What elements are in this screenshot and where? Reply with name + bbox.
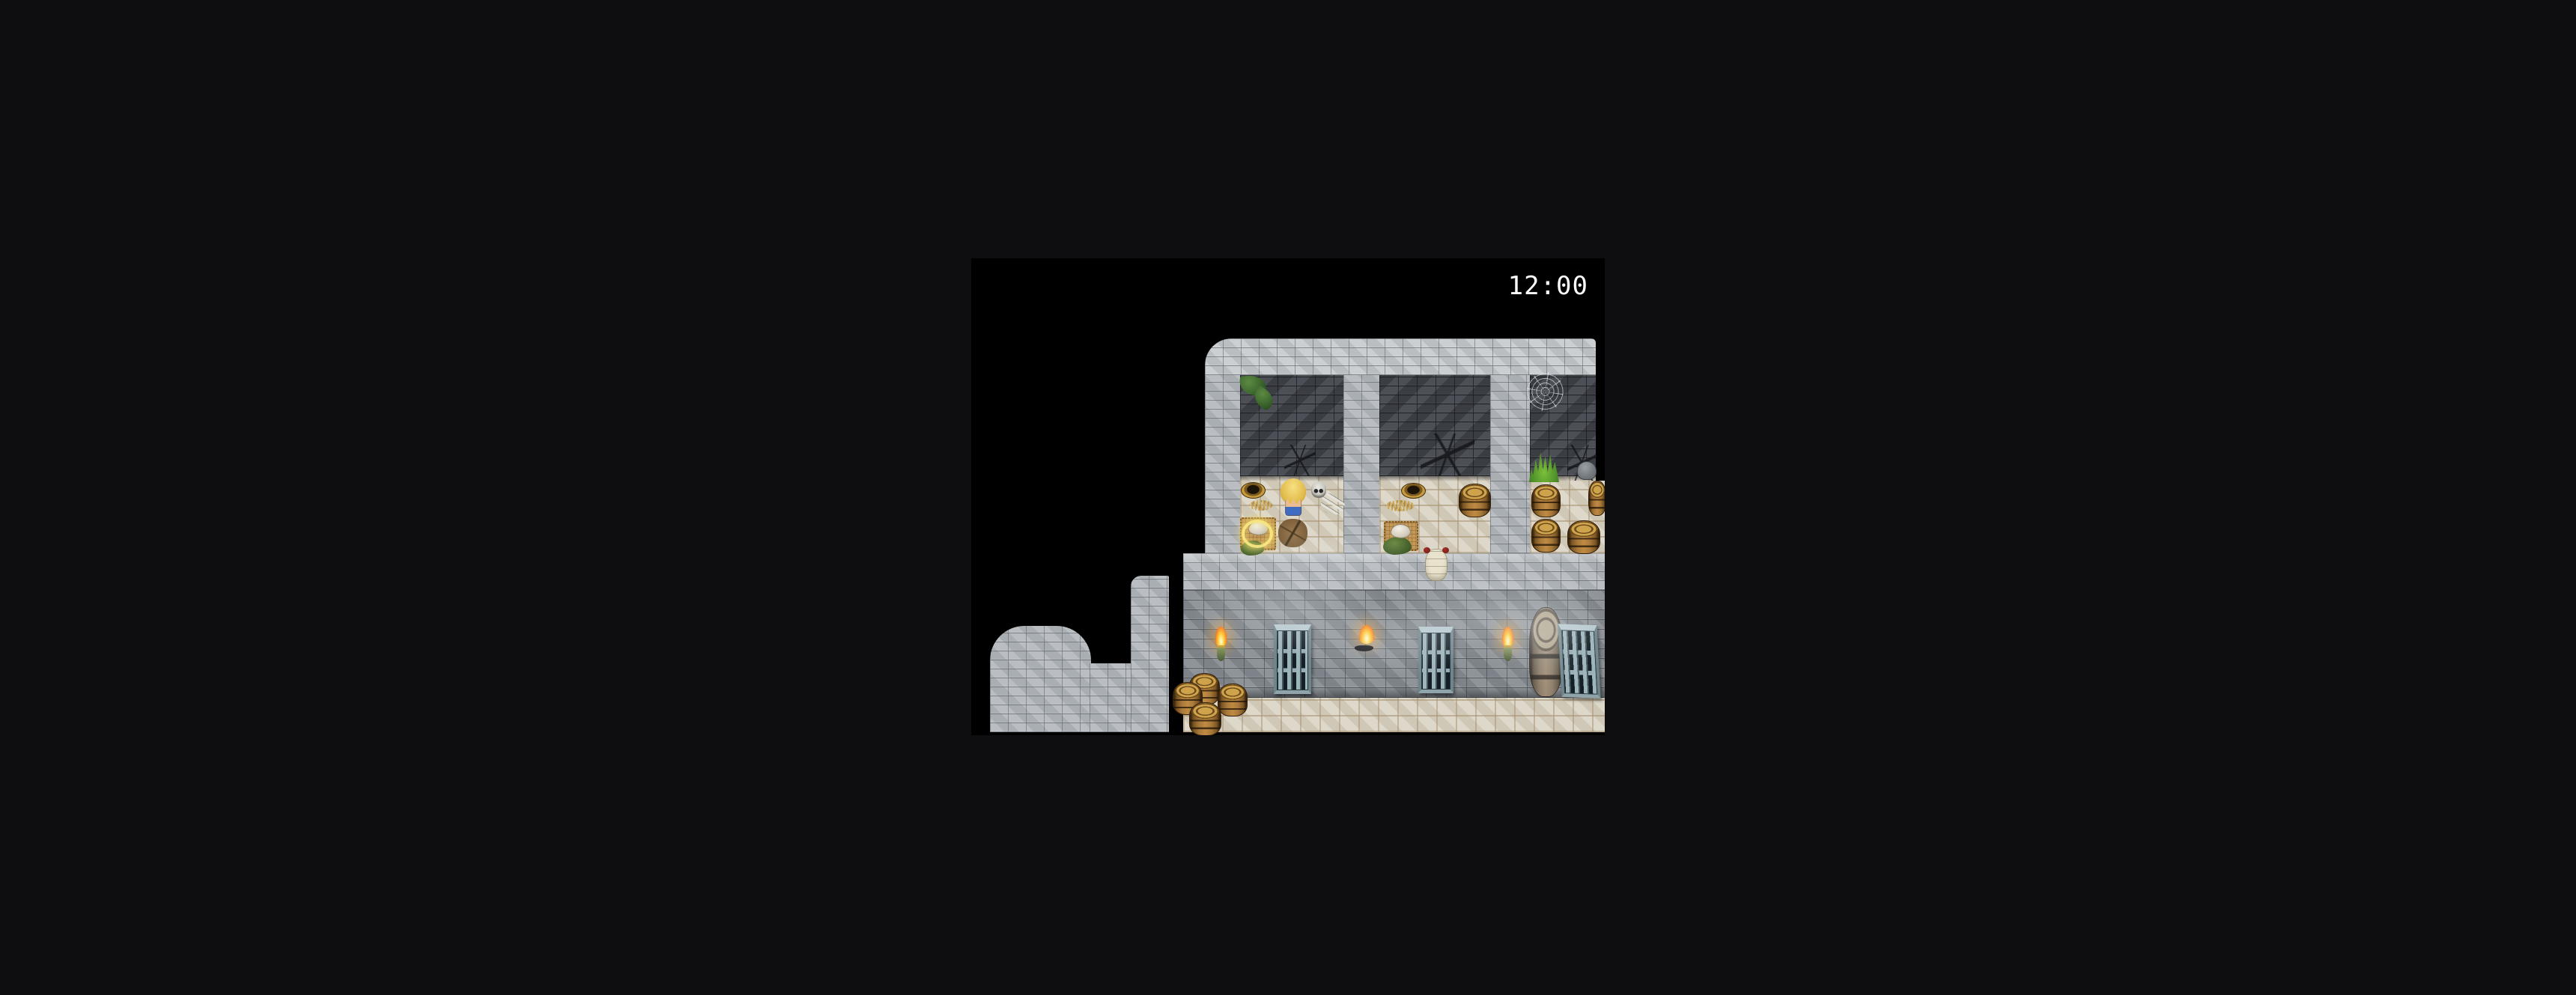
page-background: 12:00 — [0, 0, 2576, 995]
clock-display: 12:00 — [1508, 273, 1588, 299]
map-edge-notch — [1596, 338, 1605, 481]
barrel — [1531, 484, 1561, 517]
cell2-straw — [1385, 500, 1415, 511]
wall-top-band — [1205, 338, 1596, 375]
cell-divider-pillar — [1490, 375, 1530, 553]
outer-wall-column — [1205, 375, 1240, 553]
cell1-straw — [1249, 500, 1272, 511]
wall-crack — [1284, 445, 1316, 476]
barrel — [1459, 484, 1491, 517]
barrel — [1588, 481, 1605, 516]
fog-patch — [1282, 606, 1484, 678]
cell1-bucket — [1241, 482, 1266, 499]
player-character — [1281, 478, 1306, 516]
cell2-bucket — [1401, 483, 1426, 499]
barrel — [1218, 684, 1248, 716]
wall-crack — [1421, 433, 1474, 475]
game-viewport[interactable]: 12:00 — [971, 258, 1605, 735]
fog-patch — [1480, 585, 1605, 686]
mound-wall-side — [1090, 663, 1131, 732]
wall-gap-shadow — [1169, 576, 1183, 698]
skeleton — [1311, 481, 1345, 516]
left-wall-column — [1131, 576, 1169, 732]
barrel — [1531, 519, 1561, 553]
fog-patch — [1230, 534, 1424, 580]
mound-wall — [990, 626, 1091, 732]
spider-web — [1527, 372, 1564, 411]
cell2-floor-shadow — [1379, 476, 1490, 481]
barrel — [1567, 520, 1600, 554]
barrel — [1189, 702, 1221, 735]
cell-divider-pillar — [1343, 375, 1379, 553]
rubble-rock — [1577, 461, 1597, 480]
